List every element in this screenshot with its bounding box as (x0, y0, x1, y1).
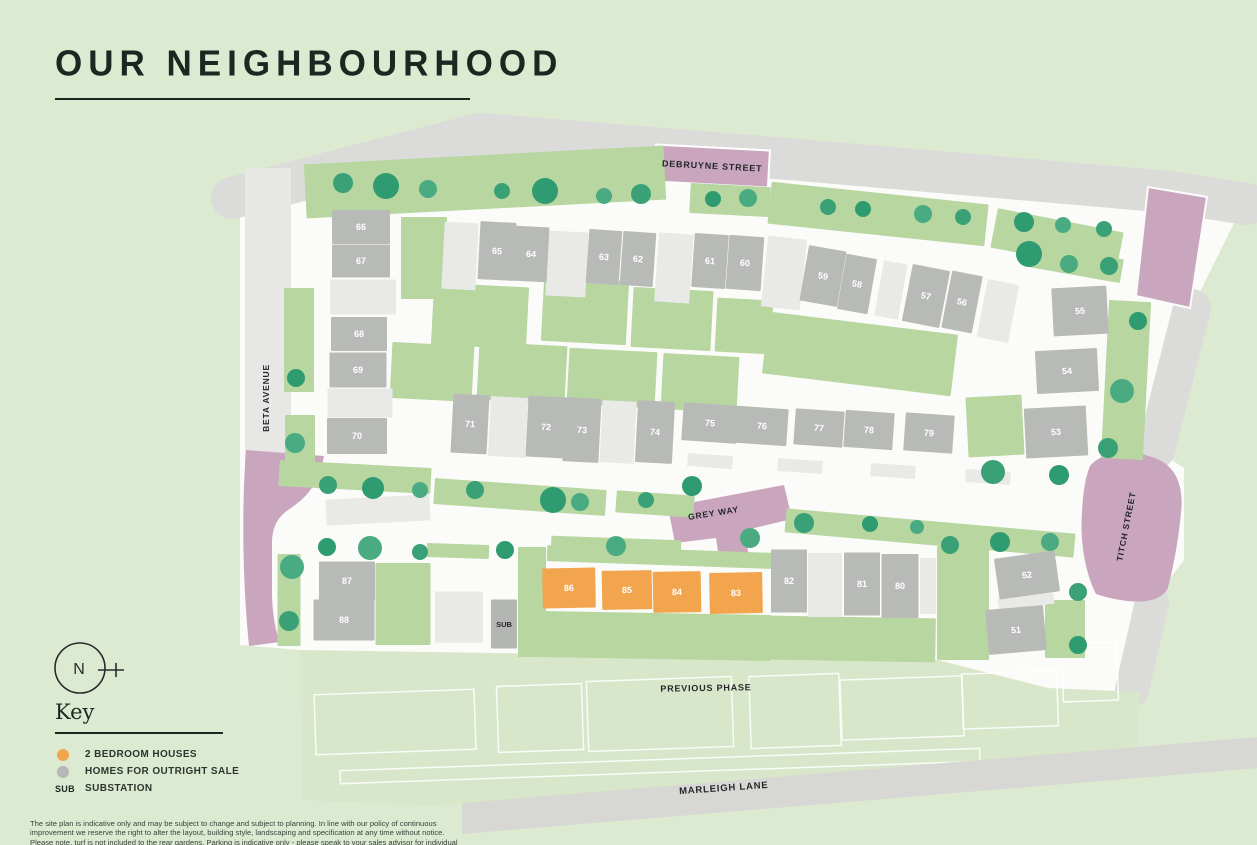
tree-icon (1110, 379, 1134, 403)
plot-73[interactable]: 73 (562, 397, 601, 463)
north-marker: N (55, 643, 124, 693)
plot-76[interactable]: 76 (735, 406, 788, 446)
tree-icon (820, 199, 836, 215)
plot-66[interactable]: 66 (332, 210, 390, 244)
plot-number: 51 (1011, 625, 1022, 636)
plot-number: 59 (817, 270, 829, 282)
tree-icon (1014, 212, 1034, 232)
plot-number: 72 (541, 422, 552, 433)
outright-swatch-icon (57, 766, 69, 778)
plot-number: 54 (1062, 366, 1073, 377)
plot-number: 75 (705, 418, 716, 429)
tree-icon (910, 520, 924, 534)
tree-icon (358, 536, 382, 560)
key-underline (55, 732, 223, 734)
page-title: OUR NEIGHBOURHOOD (55, 43, 563, 85)
tree-icon (914, 205, 932, 223)
tree-icon (1129, 312, 1147, 330)
plot-number: 60 (740, 258, 751, 269)
plot-number: 62 (633, 254, 644, 265)
key-heading: Key (55, 700, 315, 724)
plot-number: 87 (342, 576, 352, 586)
plot-number: 88 (339, 615, 349, 625)
plot-number: 74 (650, 427, 661, 438)
tree-icon (794, 513, 814, 533)
plot-number: 69 (353, 365, 363, 375)
tree-icon (606, 536, 626, 556)
plot-number: 67 (356, 256, 366, 266)
plot-SUB[interactable]: SUB (491, 600, 517, 649)
tree-icon (1041, 533, 1059, 551)
plot-60[interactable]: 60 (726, 235, 765, 291)
plot-number: 58 (851, 278, 863, 290)
plot-62[interactable]: 62 (620, 231, 657, 287)
2bed-swatch-icon (57, 749, 69, 761)
tree-icon (862, 516, 878, 532)
plot-81[interactable]: 81 (844, 553, 880, 616)
plot-number: 73 (577, 425, 588, 436)
key-item-label: 2 BEDROOM HOUSES (85, 749, 197, 760)
plot-83[interactable]: 83 (709, 572, 763, 614)
plot-number: 76 (757, 421, 768, 432)
tree-icon (855, 201, 871, 217)
plot-64[interactable]: 64 (513, 226, 550, 283)
plot-number: 68 (354, 329, 364, 339)
plot-55[interactable]: 55 (1051, 286, 1108, 337)
tree-icon (1016, 241, 1042, 267)
tree-icon (1060, 255, 1078, 273)
plot-number: 82 (784, 576, 794, 586)
plot-number: SUB (496, 620, 512, 629)
plot-number: 80 (895, 581, 905, 591)
title-underline (55, 98, 470, 100)
tree-icon (990, 532, 1010, 552)
tree-icon (333, 173, 353, 193)
key-legend: Key 2 BEDROOM HOUSES HOMES FOR OUTRIGHT … (55, 700, 315, 799)
tree-icon (1069, 583, 1087, 601)
plot-number: 79 (924, 428, 935, 439)
tree-icon (1098, 438, 1118, 458)
plot-number: 61 (705, 256, 716, 267)
page-header: OUR NEIGHBOURHOOD (55, 44, 563, 100)
key-item-substation: SUB SUBSTATION (55, 782, 315, 795)
tree-icon (466, 481, 484, 499)
plot-70[interactable]: 70 (327, 418, 387, 454)
tree-icon (705, 191, 721, 207)
plot-51[interactable]: 51 (985, 605, 1047, 655)
plot-number: 66 (356, 222, 366, 232)
street-label-previous-phase: PREVIOUS PHASE (660, 682, 751, 694)
plot-72[interactable]: 72 (525, 396, 566, 459)
plot-77[interactable]: 77 (793, 408, 844, 447)
plot-69[interactable]: 69 (330, 353, 387, 388)
plot-65[interactable]: 65 (478, 221, 517, 281)
tree-icon (494, 183, 510, 199)
tree-icon (1049, 465, 1069, 485)
plot-85[interactable]: 85 (602, 570, 653, 610)
key-item-label: SUBSTATION (85, 783, 153, 794)
tree-icon (955, 209, 971, 225)
tree-icon (412, 482, 428, 498)
plot-68[interactable]: 68 (331, 317, 387, 351)
plot-61[interactable]: 61 (691, 233, 729, 289)
plot-78[interactable]: 78 (843, 410, 894, 450)
plot-80[interactable]: 80 (882, 554, 919, 618)
sub-swatch-text: SUB (55, 784, 85, 794)
plot-54[interactable]: 54 (1035, 348, 1099, 394)
plot-number: 63 (599, 252, 610, 263)
plot-63[interactable]: 63 (586, 229, 623, 285)
plot-74[interactable]: 74 (635, 400, 675, 464)
tree-icon (631, 184, 651, 204)
tree-icon (1096, 221, 1112, 237)
plot-52[interactable]: 52 (994, 550, 1060, 599)
plot-79[interactable]: 79 (903, 412, 955, 453)
tree-icon (740, 528, 760, 548)
tree-icon (319, 476, 337, 494)
plot-84[interactable]: 84 (653, 571, 702, 613)
street-label-beta-avenue: BETA AVENUE (261, 364, 271, 432)
plot-number: 70 (352, 431, 362, 441)
tree-icon (419, 180, 437, 198)
plot-number: 83 (731, 588, 741, 598)
tree-icon (540, 487, 566, 513)
tree-icon (373, 173, 399, 199)
plot-number: 57 (920, 290, 932, 302)
plot-number: 78 (864, 425, 875, 436)
tree-icon (739, 189, 757, 207)
plot-87[interactable]: 87 (319, 562, 375, 601)
key-item-2bed: 2 BEDROOM HOUSES (55, 748, 315, 761)
tree-icon (638, 492, 654, 508)
plot-number: 85 (622, 585, 632, 595)
key-item-label: HOMES FOR OUTRIGHT SALE (85, 766, 239, 777)
tree-icon (981, 460, 1005, 484)
tree-icon (571, 493, 589, 511)
tree-icon (682, 476, 702, 496)
tree-icon (496, 541, 514, 559)
plot-number: 52 (1021, 569, 1032, 580)
plot-75[interactable]: 75 (681, 402, 739, 444)
tree-icon (412, 544, 428, 560)
tree-icon (287, 369, 305, 387)
tree-icon (532, 178, 558, 204)
plot-number: 53 (1051, 427, 1062, 438)
disclaimer-text: The site plan is indicative only and may… (30, 819, 467, 845)
plot-67[interactable]: 67 (332, 245, 390, 278)
tree-icon (1055, 217, 1071, 233)
key-item-outright: HOMES FOR OUTRIGHT SALE (55, 765, 315, 778)
tree-icon (1100, 257, 1118, 275)
north-label: N (73, 661, 85, 678)
tree-icon (279, 611, 299, 631)
plot-53[interactable]: 53 (1024, 405, 1089, 458)
site-plan-page: 6667686970656463626160595857565554537172… (0, 0, 1257, 845)
tree-icon (1069, 636, 1087, 654)
plot-number: 71 (465, 419, 476, 430)
tree-icon (596, 188, 612, 204)
plot-71[interactable]: 71 (450, 394, 489, 455)
plot-number: 77 (814, 423, 825, 434)
plot-number: 81 (857, 579, 867, 589)
tree-icon (318, 538, 336, 556)
tree-icon (285, 433, 305, 453)
plot-number: 55 (1075, 306, 1086, 317)
tree-icon (280, 555, 304, 579)
plot-86[interactable]: 86 (542, 568, 596, 609)
plot-82[interactable]: 82 (771, 550, 807, 613)
plot-number: 65 (492, 246, 503, 257)
plot-number: 56 (956, 296, 968, 308)
tree-icon (362, 477, 384, 499)
plot-number: 64 (526, 249, 537, 260)
plot-88[interactable]: 88 (314, 600, 375, 641)
plot-number: 86 (564, 583, 574, 593)
tree-icon (941, 536, 959, 554)
plot-number: 84 (672, 587, 682, 597)
